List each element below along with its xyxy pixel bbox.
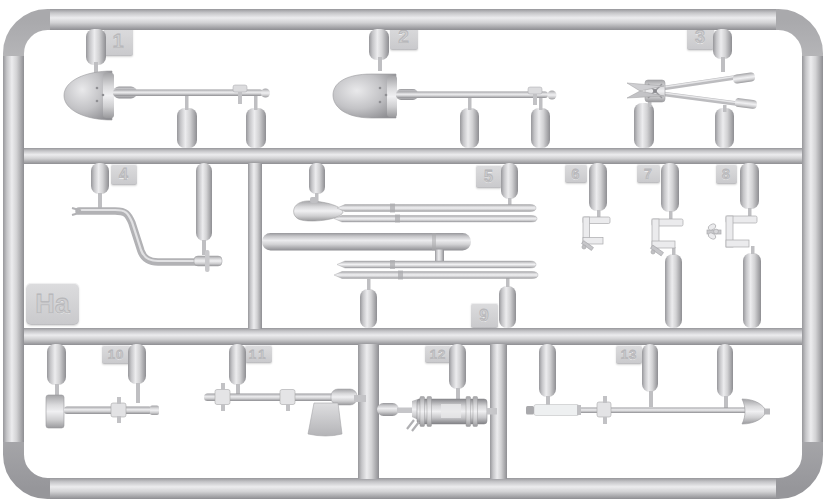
part-rod-spade-tip (526, 396, 770, 424)
part-tool-clamp-6 (582, 217, 610, 250)
runner-vertical-left-mid (248, 163, 262, 329)
sprue-render (0, 0, 828, 504)
runner-stub-bar (262, 233, 471, 262)
part-tool-clamp-7 (651, 219, 683, 256)
part-round-point-shovel (64, 71, 270, 120)
part-square-point-shovel (333, 74, 557, 118)
part-grease-pump (377, 397, 497, 432)
runner-vertical-bottom-left (358, 344, 379, 479)
part-sledgehammer (46, 395, 159, 428)
part-tool-clamp-8 (707, 216, 757, 247)
part-axe (204, 383, 366, 436)
runner-rail-lower (24, 328, 802, 345)
sprue-photo: 1 2 3 4 5 6 7 8 9 10 11 12 13 Ha (0, 0, 828, 504)
runner-rail-upper (24, 148, 802, 164)
